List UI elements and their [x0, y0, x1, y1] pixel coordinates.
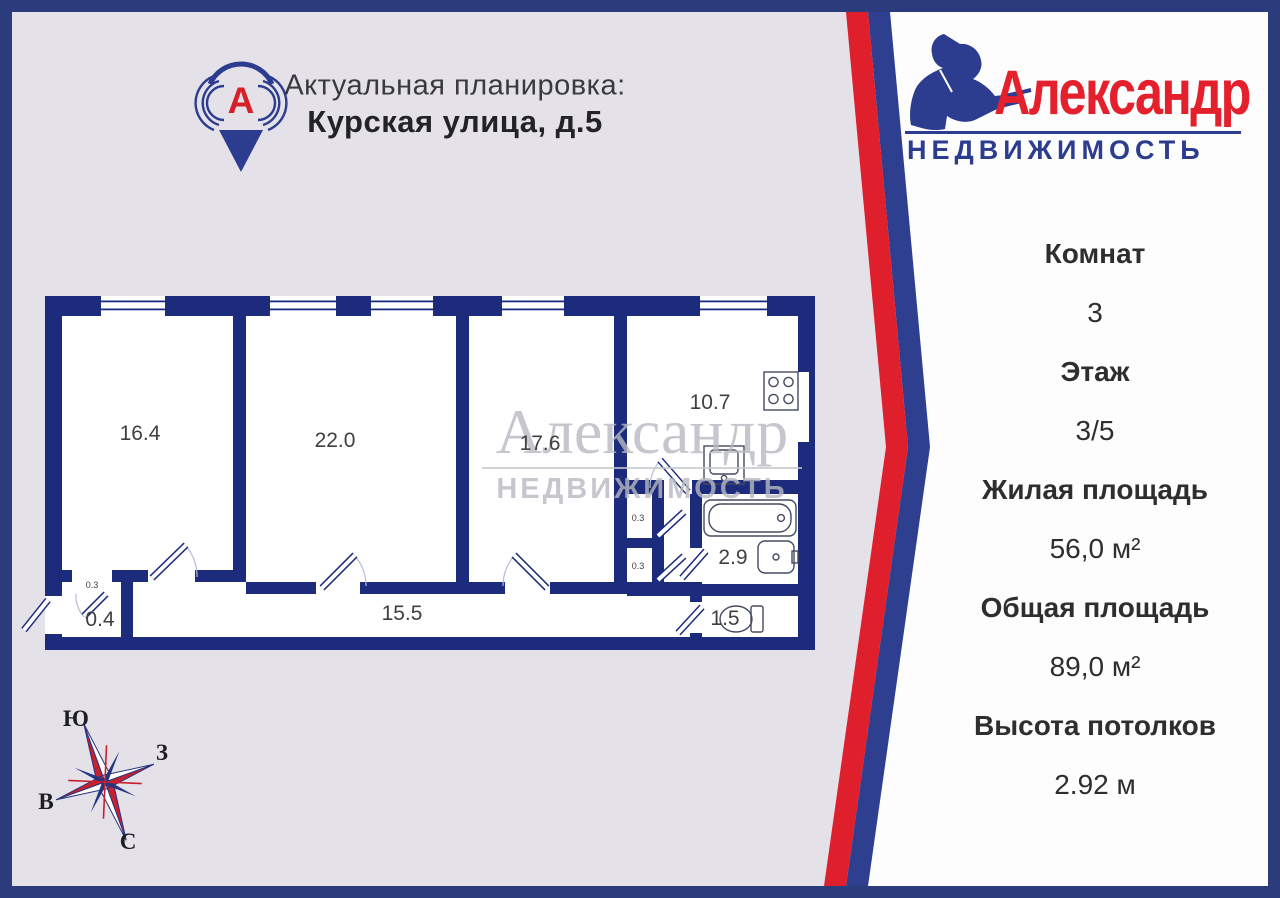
compass-label-west: З — [156, 740, 168, 766]
info-panel: Комнат 3 Этаж 3/5 Жилая площадь 56,0 м² … — [935, 224, 1255, 814]
compass-label-east: В — [38, 789, 53, 815]
room-area-label: 2.9 — [718, 546, 747, 570]
flyer-canvas: Актуальная планировка: Курская улица, д.… — [0, 0, 1280, 898]
room-area-label-small: 0.3 — [632, 513, 645, 523]
logo-subtitle: НЕДВИЖИМОСТЬ — [907, 137, 1205, 164]
info-value: 3 — [935, 283, 1255, 342]
logo-name: Александр — [994, 62, 1250, 125]
room-area-label: 17.6 — [520, 432, 561, 456]
info-label: Жилая площадь — [935, 460, 1255, 519]
room-area-label: 1.5 — [710, 607, 739, 631]
info-label: Комнат — [935, 224, 1255, 283]
header-subtitle: Актуальная планировка: — [284, 70, 625, 103]
room-area-label: 22.0 — [315, 429, 356, 453]
room-area-label: 16.4 — [120, 422, 161, 446]
compass-label-south: Ю — [63, 706, 89, 732]
room-area-label-small: 0.3 — [86, 580, 99, 590]
room-area-label: 0.4 — [85, 608, 114, 632]
info-label: Этаж — [935, 342, 1255, 401]
info-label: Высота потолков — [935, 696, 1255, 755]
compass-label-north: С — [120, 829, 137, 855]
info-value: 2.92 м — [935, 755, 1255, 814]
watermark-line2: НЕДВИЖИМОСТЬ — [482, 473, 802, 506]
logo-underline — [905, 131, 1241, 134]
room-area-label-small: 0.3 — [632, 561, 645, 571]
room-area-label: 10.7 — [690, 391, 731, 415]
info-label: Общая площадь — [935, 578, 1255, 637]
info-value: 3/5 — [935, 401, 1255, 460]
pin-letter: А — [228, 80, 255, 122]
info-value: 56,0 м² — [935, 519, 1255, 578]
info-value: 89,0 м² — [935, 637, 1255, 696]
header-address: Курская улица, д.5 — [307, 104, 602, 140]
room-area-label: 15.5 — [382, 602, 423, 626]
